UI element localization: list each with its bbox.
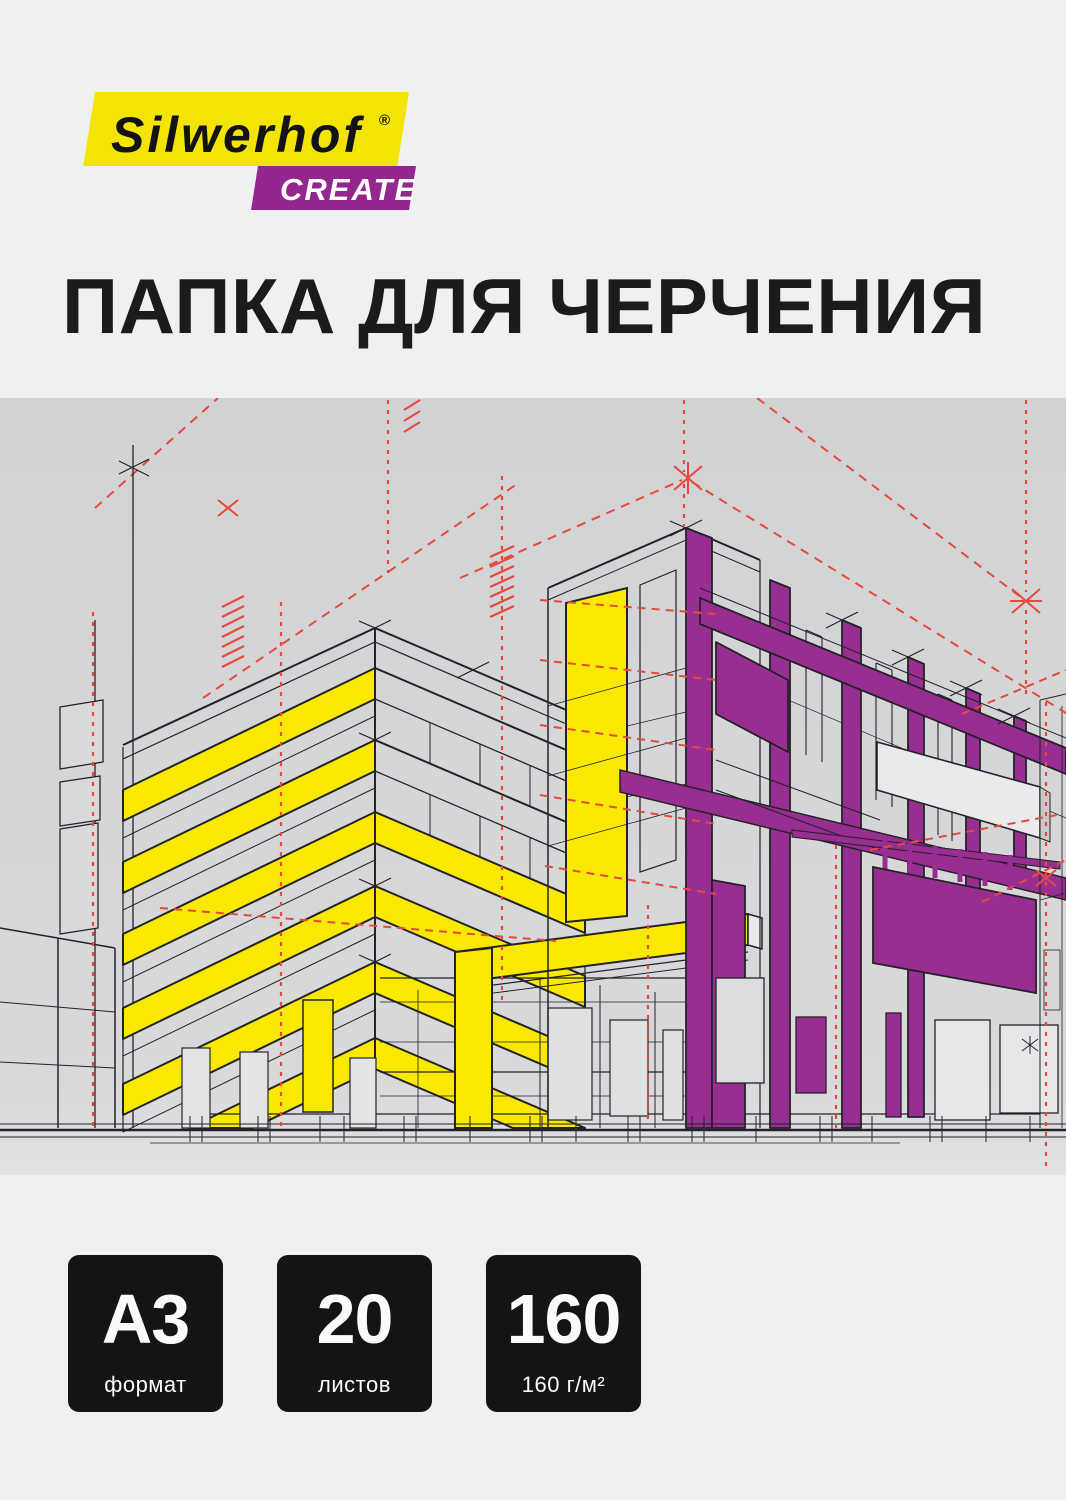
spec-badge-format: A3 формат xyxy=(68,1255,223,1412)
registered-trademark-mark: ® xyxy=(379,112,390,129)
sheets-value: 20 xyxy=(317,1284,393,1354)
sheets-label: листов xyxy=(318,1372,391,1398)
brand-logo: Silwerhof ® CREATE xyxy=(0,0,500,230)
product-title: ПАПКА ДЛЯ ЧЕРЧЕНИЯ xyxy=(62,267,1022,345)
spec-badge-sheets: 20 листов xyxy=(277,1255,432,1412)
architectural-blueprint-illustration xyxy=(0,398,1066,1175)
brand-wordmark: Silwerhof xyxy=(111,106,363,164)
density-value: 160 xyxy=(507,1284,621,1354)
density-label: 160 г/м² xyxy=(522,1372,605,1398)
format-label: формат xyxy=(104,1372,187,1398)
spec-badge-density: 160 160 г/м² xyxy=(486,1255,641,1412)
format-value: A3 xyxy=(102,1284,189,1354)
spec-badges: A3 формат 20 листов 160 160 г/м² xyxy=(68,1255,641,1412)
brand-subline: CREATE xyxy=(280,172,417,208)
packaging-front: Silwerhof ® CREATE ПАПКА ДЛЯ ЧЕРЧЕНИЯ xyxy=(0,0,1066,1500)
